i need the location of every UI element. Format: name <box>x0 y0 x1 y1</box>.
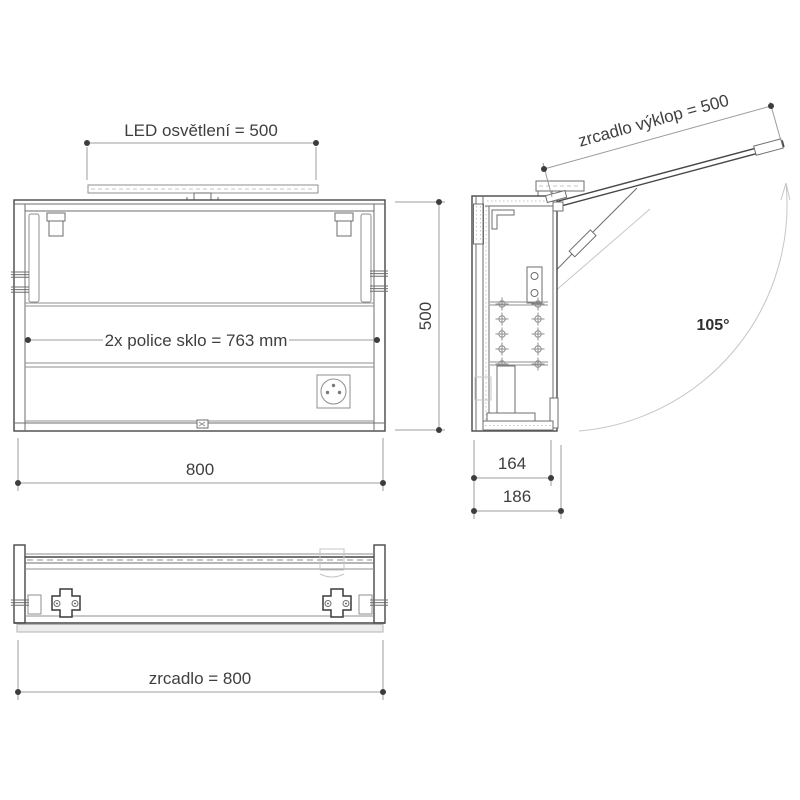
depth-body-label: 164 <box>498 454 526 473</box>
mirror-end-cap <box>754 139 784 155</box>
front-led-dimension: LED osvětlení = 500 <box>84 121 319 180</box>
mirror-width-label: zrcadlo = 800 <box>149 669 252 688</box>
cabinet-height-label: 500 <box>416 302 435 330</box>
front-view: LED osvětlení = 500 <box>11 121 445 491</box>
side-view: 105° <box>471 91 790 519</box>
wall-bracket-left <box>52 589 80 617</box>
depth-total-label: 186 <box>503 487 531 506</box>
hinge-bracket-right <box>335 213 353 236</box>
front-width-dimension: 800 <box>15 438 386 491</box>
technical-drawing: LED osvětlení = 500 <box>0 0 800 800</box>
cabinet-width-label: 800 <box>186 460 214 479</box>
front-cabinet-body <box>11 200 388 431</box>
power-socket-icon <box>317 375 350 408</box>
door-strip-left <box>29 214 39 302</box>
mirror-width-dimension: zrcadlo = 800 <box>15 640 386 700</box>
shelf-width-label: 2x police sklo = 763 mm <box>105 331 288 350</box>
front-height-dimension: 500 <box>395 199 445 433</box>
wall-bracket-right <box>323 589 351 617</box>
depth-body-dimension: 164 <box>471 440 554 519</box>
opening-angle-label: 105° <box>696 317 729 334</box>
side-cabinet-body <box>472 191 567 431</box>
plan-cabinet-body <box>11 545 388 632</box>
hinge-bracket-left <box>47 213 65 236</box>
mirror-tilt-label: zrcadlo výklop = 500 <box>576 91 731 151</box>
led-width-label: LED osvětlení = 500 <box>124 121 278 140</box>
mirror-section-strip <box>25 557 374 563</box>
plan-stile-right <box>374 545 385 623</box>
tilted-mirror-door <box>556 139 784 209</box>
strut-bracket-plate <box>527 267 542 303</box>
latch-icon <box>197 420 208 428</box>
drawing-canvas: LED osvětlení = 500 <box>0 0 800 800</box>
plan-base-strip <box>17 625 383 633</box>
wall-rail <box>474 204 484 244</box>
plan-view: zrcadlo = 800 <box>11 545 388 700</box>
angle-arrow-icon <box>781 183 786 200</box>
plan-stile-left <box>14 545 25 623</box>
socket-housing <box>497 366 515 413</box>
side-fixing-left <box>28 595 41 614</box>
side-fixing-right <box>359 595 372 614</box>
door-strip-right <box>361 214 371 302</box>
opening-angle-arc: 105° <box>579 183 790 431</box>
